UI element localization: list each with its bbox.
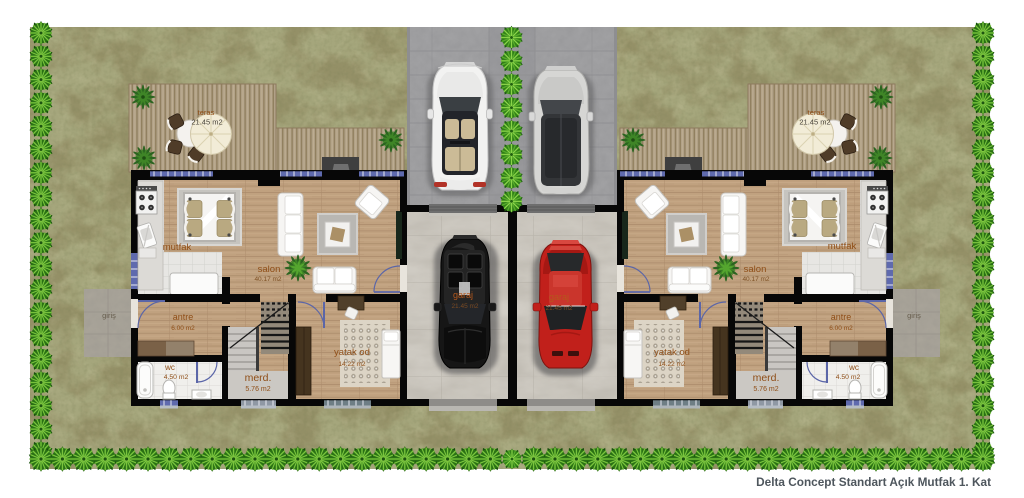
svg-text:teras: teras <box>808 108 825 117</box>
svg-text:mutfak: mutfak <box>828 241 857 252</box>
svg-text:giriş: giriş <box>102 311 116 320</box>
svg-text:teras: teras <box>198 108 215 117</box>
svg-text:5.76 m2: 5.76 m2 <box>753 386 778 393</box>
svg-text:garaj: garaj <box>549 292 569 302</box>
svg-text:21.45 m2: 21.45 m2 <box>545 305 572 312</box>
svg-text:6.00 m2: 6.00 m2 <box>171 325 195 332</box>
svg-text:40.17 m2: 40.17 m2 <box>254 276 281 283</box>
svg-text:40.17 m2: 40.17 m2 <box>742 276 769 283</box>
svg-text:merd.: merd. <box>245 372 272 384</box>
svg-text:salon: salon <box>744 264 767 275</box>
svg-text:antre: antre <box>831 312 852 322</box>
svg-text:garaj: garaj <box>453 290 473 300</box>
svg-text:Delta Concept Standart Açık Mu: Delta Concept Standart Açık Mutfak 1. Ka… <box>756 475 991 489</box>
svg-text:21.45 m2: 21.45 m2 <box>191 118 222 127</box>
svg-text:yatak od: yatak od <box>654 347 690 358</box>
svg-text:14.22 m2: 14.22 m2 <box>338 361 365 368</box>
svg-text:14.22 m2: 14.22 m2 <box>658 361 685 368</box>
svg-text:merd.: merd. <box>753 372 780 384</box>
svg-text:salon: salon <box>258 264 281 275</box>
svg-text:21.45 m2: 21.45 m2 <box>799 118 830 127</box>
svg-text:wc: wc <box>848 363 859 372</box>
svg-text:6.00 m2: 6.00 m2 <box>829 325 853 332</box>
svg-text:yatak od: yatak od <box>334 347 370 358</box>
svg-text:giriş: giriş <box>907 311 921 320</box>
svg-text:wc: wc <box>164 363 175 372</box>
svg-text:mutfak: mutfak <box>163 242 192 253</box>
svg-text:antre: antre <box>173 312 194 322</box>
svg-text:21.45 m2: 21.45 m2 <box>451 303 478 310</box>
svg-text:4.50 m2: 4.50 m2 <box>836 374 861 381</box>
svg-text:4.50 m2: 4.50 m2 <box>164 374 189 381</box>
svg-text:5.76 m2: 5.76 m2 <box>245 386 270 393</box>
